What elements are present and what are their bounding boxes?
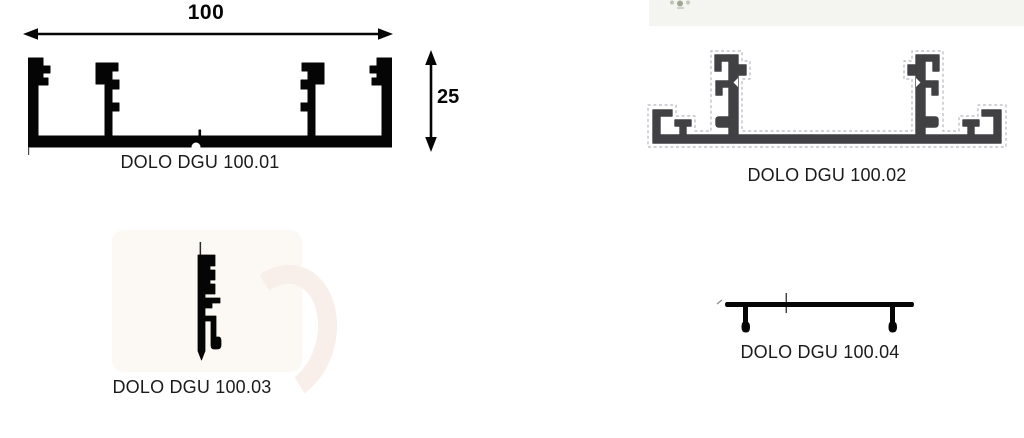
figure-caption-100-02: DOLO DGU 100.02 bbox=[697, 165, 957, 186]
profile-catalog-canvas: 100 25 DOLO DGU 100.01 bbox=[0, 0, 1024, 438]
cropped-photo-strip bbox=[649, 0, 1024, 26]
width-dimension-arrow bbox=[22, 27, 394, 41]
width-dimension-value: 100 bbox=[96, 2, 316, 23]
figure-caption-100-03: DOLO DGU 100.03 bbox=[62, 377, 322, 398]
profile-drawing-100-01 bbox=[28, 56, 392, 156]
cut-outline-dashed bbox=[648, 51, 1006, 147]
height-dimension-value: 25 bbox=[437, 87, 459, 107]
figure-caption-100-01: DOLO DGU 100.01 bbox=[70, 152, 330, 173]
figure-caption-100-04: DOLO DGU 100.04 bbox=[690, 342, 950, 363]
profile-drawing-100-04 bbox=[713, 293, 923, 337]
profile-drawing-100-03 bbox=[186, 242, 226, 362]
partial-logo-icon bbox=[663, 0, 699, 10]
profile-drawing-100-02 bbox=[645, 48, 1009, 153]
